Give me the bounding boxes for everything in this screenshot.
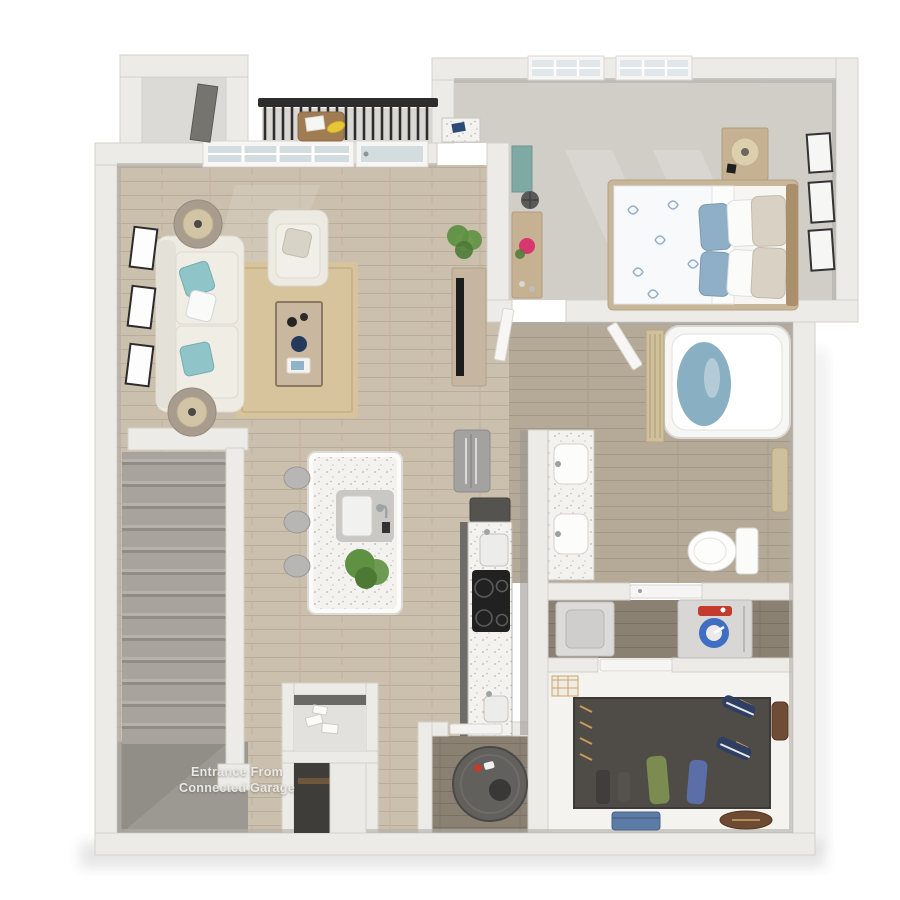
wall-laundry-closet-a [548,658,598,672]
vanity [548,430,594,580]
island-sink [342,496,372,536]
niche-console [442,118,480,142]
wall-art [130,227,158,270]
dresser [512,212,542,298]
headboard [786,184,798,306]
wall-bath-laundry-a [548,583,630,600]
entrance-label-line1: Entrance From [191,765,283,779]
faucet [484,529,490,535]
flower-leaves [515,249,525,259]
prep-sink [484,696,508,722]
patterned-pillow [282,228,313,259]
entrance-label-line2: Connected Garage [179,781,295,795]
kitchen-island [308,452,402,614]
gallery-frames [807,133,835,271]
utility-door-panel [450,724,502,734]
counter-run [460,522,512,736]
soap-bottles [382,522,390,533]
wall-outer-right [793,322,815,833]
faucet [555,461,561,467]
wall-laundry-closet-b [672,658,793,672]
armchair [268,210,328,286]
stair-steps [122,452,226,744]
pantry-closet [294,695,366,833]
side-table [174,200,222,248]
blue-pillow [698,203,731,251]
navy-vase [291,336,307,352]
balcony-balusters [262,107,434,140]
wall-face [117,829,793,833]
balcony-railing-cap [258,98,438,107]
nightstand [722,128,768,180]
closet-door-panel [600,659,672,671]
sofa-back [156,240,176,408]
wall-cabinet [470,498,510,522]
bar-stool [284,555,310,577]
kitchen-sink [480,534,508,566]
bedroom-window-2 [616,56,692,80]
teal-desk [512,146,532,192]
bar-stool [284,511,310,533]
faucet [555,531,561,537]
wall-porch-right [226,77,248,143]
sofa [156,236,244,412]
decor-mug [300,313,308,321]
bar-stool [284,467,310,489]
toilet [688,528,758,574]
stair-railing-wall [226,448,244,770]
wall-art [126,344,154,387]
washer [678,600,752,658]
shelf-shadow [294,695,366,705]
wall-kitchen-bath-divider [528,430,548,833]
perfume-bottle [529,286,535,292]
bed [608,180,798,310]
cooktop [472,570,510,632]
blue-cloth [291,361,304,370]
slider-door [330,763,366,833]
wall-art [809,181,835,223]
side-table [168,388,216,436]
blue-pillow [699,251,731,297]
tv-console [452,268,486,386]
refrigerator [454,430,490,492]
hand-towel [772,448,788,512]
tub-water [677,342,731,426]
wall-pantry-divider [282,751,378,763]
detergent-tray [698,606,732,616]
wall-porch-top [120,55,248,77]
wall-art [128,286,156,329]
folded-jeans [612,812,660,830]
soaking-tub [664,326,790,438]
flat-tv [456,278,464,376]
balcony-glass-door [356,141,428,167]
dryer [556,602,614,656]
wall-wing-right [836,58,858,322]
patterned-sham [751,247,788,299]
teal-pillow [179,341,215,377]
bedroom-window-1 [528,56,604,80]
floor-plan: Entrance From Connected Garage [0,0,900,900]
wall-utility-left [418,722,432,833]
book [305,116,325,131]
wall-outer-left [95,143,117,855]
door-handle [364,152,369,157]
wall-bath-laundry-b [702,583,793,600]
faucet [486,691,492,697]
wall-living-bedroom-divider [487,143,509,300]
wall-art [809,229,835,271]
bar-stools [284,467,310,577]
patterned-sham [751,195,787,246]
wall-face [520,430,528,735]
alarm-clock [726,163,736,173]
decor-mug [287,317,297,327]
handbag [772,702,788,740]
storage-box [552,676,578,696]
living-picture-window [203,141,354,167]
wall-face [117,165,121,833]
water-heater [453,747,527,821]
door-knob [638,589,642,593]
coffee-table [276,302,322,386]
wall-outer-bottom [95,833,815,855]
perfume-bottle [519,281,525,287]
shower-curtain [646,330,664,442]
wall-art [807,133,833,173]
wall-pantry-top [282,683,378,695]
